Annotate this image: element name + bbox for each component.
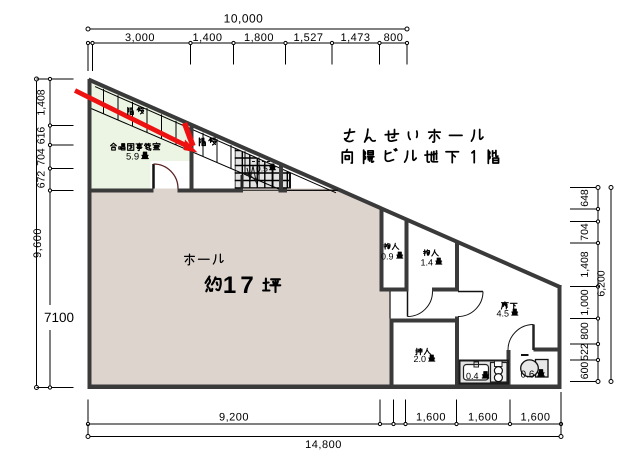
svg-text:704: 704 — [579, 223, 591, 241]
svg-text:1,600: 1,600 — [416, 412, 446, 424]
svg-text:1,600: 1,600 — [468, 412, 498, 424]
svg-text:10,000: 10,000 — [224, 12, 264, 26]
svg-text:1,400: 1,400 — [192, 32, 222, 44]
svg-text:4.5: 4.5 — [497, 309, 510, 319]
svg-text:672: 672 — [36, 171, 48, 189]
svg-text:14,800: 14,800 — [305, 439, 342, 451]
svg-text:9,200: 9,200 — [219, 412, 249, 424]
svg-text:2.0: 2.0 — [414, 354, 427, 364]
svg-text:1,408: 1,408 — [579, 251, 591, 277]
svg-text:616: 616 — [36, 127, 48, 145]
svg-text:1,600: 1,600 — [520, 412, 550, 424]
svg-text:1: 1 — [223, 272, 236, 299]
svg-text:6,200: 6,200 — [596, 270, 608, 296]
svg-text:5.9: 5.9 — [126, 152, 139, 163]
svg-text:1,800: 1,800 — [244, 32, 274, 44]
svg-text:1,527: 1,527 — [293, 32, 323, 44]
svg-text:0.6: 0.6 — [521, 370, 535, 381]
svg-text:1,408: 1,408 — [36, 89, 48, 115]
svg-text:0.4: 0.4 — [466, 371, 479, 381]
svg-text:522: 522 — [579, 343, 591, 361]
svg-text:800: 800 — [384, 32, 404, 44]
svg-text:9,600: 9,600 — [32, 228, 44, 258]
svg-text:800: 800 — [579, 322, 591, 340]
svg-text:0.9: 0.9 — [381, 252, 394, 262]
svg-text:0.5: 0.5 — [256, 164, 268, 174]
svg-text:7: 7 — [240, 272, 253, 299]
svg-text:1,473: 1,473 — [340, 32, 370, 44]
svg-text:3,000: 3,000 — [125, 32, 155, 44]
svg-text:648: 648 — [579, 189, 591, 207]
svg-text:704: 704 — [36, 148, 48, 166]
svg-text:1.4: 1.4 — [421, 258, 434, 268]
svg-text:600: 600 — [579, 362, 591, 380]
svg-text:7100: 7100 — [44, 310, 74, 325]
svg-text:1,000: 1,000 — [579, 289, 591, 315]
